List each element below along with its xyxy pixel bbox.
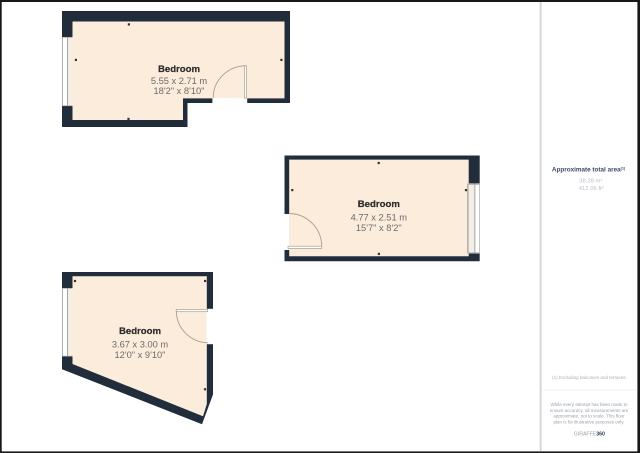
- svg-text:Bedroom: Bedroom: [119, 326, 161, 337]
- svg-text:While every attempt has been m: While every attempt has been made to: [550, 402, 628, 407]
- svg-text:Approximate total area(1): Approximate total area(1): [552, 166, 626, 173]
- svg-text:approximate, not to scale. Thi: approximate, not to scale. This floor: [553, 414, 625, 419]
- svg-text:5.55 x 2.71 m: 5.55 x 2.71 m: [151, 76, 208, 86]
- svg-text:38.28 m²: 38.28 m²: [579, 178, 602, 184]
- svg-text:plan is for illustrative purpo: plan is for illustrative purposes only.: [554, 419, 625, 424]
- svg-text:ensure accuracy, all measureme: ensure accuracy, all measurements are: [550, 408, 629, 413]
- svg-text:GIRAFFE360: GIRAFFE360: [574, 431, 605, 437]
- svg-text:Bedroom: Bedroom: [158, 64, 200, 75]
- svg-text:(1) Excluding balconies and te: (1) Excluding balconies and terraces: [552, 375, 626, 380]
- svg-text:18'2" x 8'10": 18'2" x 8'10": [154, 86, 205, 96]
- svg-text:3.67 x 3.00 m: 3.67 x 3.00 m: [112, 340, 169, 350]
- svg-text:15'7" x 8'2": 15'7" x 8'2": [356, 223, 402, 233]
- svg-text:412.06 ft²: 412.06 ft²: [579, 186, 604, 192]
- svg-text:4.77 x 2.51 m: 4.77 x 2.51 m: [351, 213, 408, 223]
- svg-text:12'0" x 9'10": 12'0" x 9'10": [115, 350, 166, 360]
- svg-text:Bedroom: Bedroom: [358, 199, 400, 210]
